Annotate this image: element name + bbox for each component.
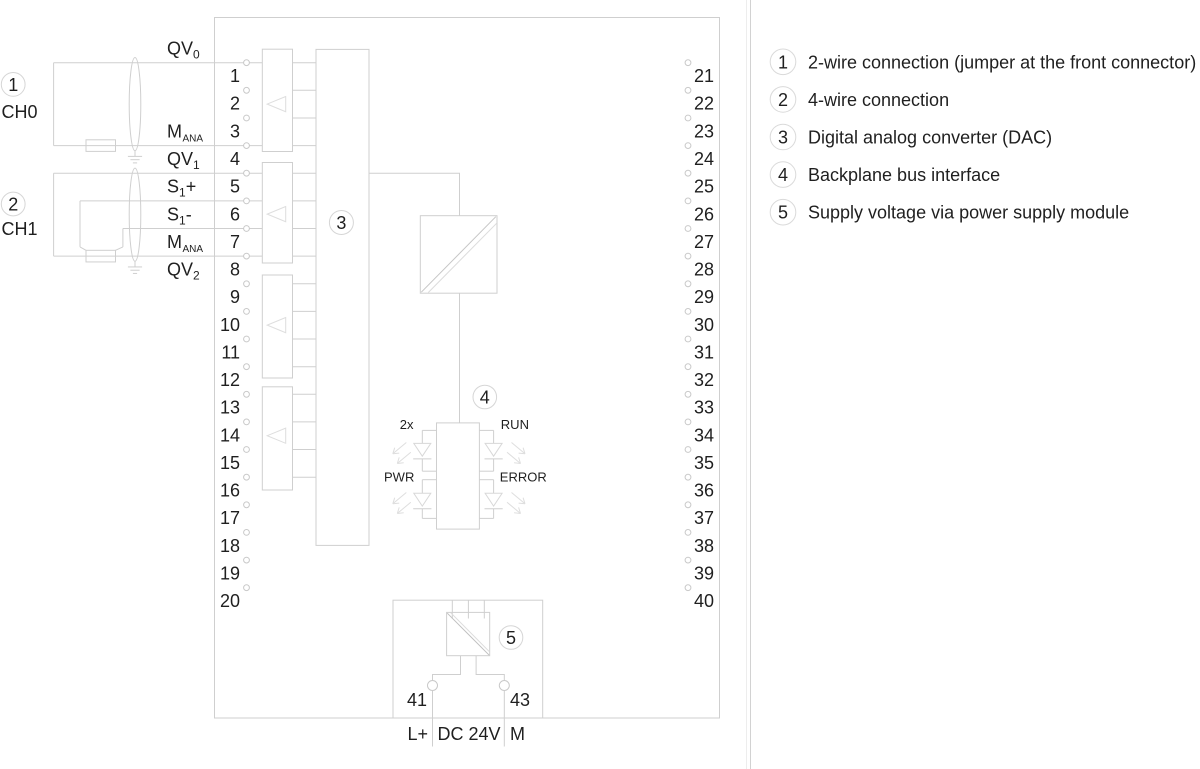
svg-text:2: 2 xyxy=(778,90,788,110)
svg-text:39: 39 xyxy=(694,564,714,584)
svg-text:4: 4 xyxy=(778,165,788,185)
svg-text:14: 14 xyxy=(220,425,240,445)
svg-text:ERROR: ERROR xyxy=(500,470,547,485)
svg-text:41: 41 xyxy=(407,690,427,710)
svg-text:3: 3 xyxy=(778,128,788,148)
svg-text:Backplane bus interface: Backplane bus interface xyxy=(808,165,1000,185)
svg-text:1: 1 xyxy=(193,158,200,172)
svg-text:29: 29 xyxy=(694,287,714,307)
svg-text:34: 34 xyxy=(694,425,714,445)
svg-text:32: 32 xyxy=(694,370,714,390)
svg-text:30: 30 xyxy=(694,315,714,335)
svg-text:24: 24 xyxy=(694,149,714,169)
svg-text:M: M xyxy=(167,232,182,252)
svg-text:3: 3 xyxy=(336,213,346,233)
svg-text:1: 1 xyxy=(230,66,240,86)
svg-text:CH0: CH0 xyxy=(2,102,38,122)
svg-text:8: 8 xyxy=(230,260,240,280)
svg-text:QV: QV xyxy=(167,149,193,169)
svg-text:4-wire connection: 4-wire connection xyxy=(808,90,949,110)
svg-text:36: 36 xyxy=(694,481,714,501)
svg-text:15: 15 xyxy=(220,453,240,473)
svg-text:QV: QV xyxy=(167,38,193,58)
svg-text:12: 12 xyxy=(220,370,240,390)
svg-text:23: 23 xyxy=(694,121,714,141)
svg-text:18: 18 xyxy=(220,536,240,556)
svg-text:22: 22 xyxy=(694,94,714,114)
svg-text:16: 16 xyxy=(220,481,240,501)
svg-text:31: 31 xyxy=(694,342,714,362)
svg-text:RUN: RUN xyxy=(501,417,529,432)
svg-text:13: 13 xyxy=(220,398,240,418)
svg-text:PWR: PWR xyxy=(384,470,414,485)
svg-text:QV: QV xyxy=(167,260,193,280)
svg-text:ANA: ANA xyxy=(183,244,204,255)
svg-text:1: 1 xyxy=(778,52,788,72)
svg-text:25: 25 xyxy=(694,177,714,197)
svg-text:5: 5 xyxy=(230,177,240,197)
svg-text:38: 38 xyxy=(694,536,714,556)
svg-text:9: 9 xyxy=(230,287,240,307)
svg-text:11: 11 xyxy=(221,342,240,362)
svg-text:10: 10 xyxy=(220,315,240,335)
svg-text:2: 2 xyxy=(193,269,200,283)
svg-text:19: 19 xyxy=(220,564,240,584)
svg-text:7: 7 xyxy=(230,232,240,252)
svg-text:2: 2 xyxy=(230,94,240,114)
svg-text:28: 28 xyxy=(694,260,714,280)
svg-text:L+: L+ xyxy=(407,724,428,744)
svg-text:4: 4 xyxy=(480,387,490,407)
svg-text:Digital analog converter (DAC): Digital analog converter (DAC) xyxy=(808,128,1052,148)
svg-text:43: 43 xyxy=(510,690,530,710)
svg-text:17: 17 xyxy=(220,508,240,528)
svg-text:ANA: ANA xyxy=(183,133,204,144)
svg-text:S: S xyxy=(167,204,179,224)
svg-text:-: - xyxy=(186,204,192,224)
svg-text:4: 4 xyxy=(230,149,240,169)
svg-text:+: + xyxy=(186,177,197,197)
svg-text:37: 37 xyxy=(694,508,714,528)
svg-text:Supply voltage via power suppl: Supply voltage via power supply module xyxy=(808,203,1129,223)
svg-text:20: 20 xyxy=(220,591,240,611)
svg-text:6: 6 xyxy=(230,204,240,224)
svg-text:M: M xyxy=(167,121,182,141)
svg-text:1: 1 xyxy=(8,75,18,95)
svg-text:CH1: CH1 xyxy=(2,219,38,239)
svg-text:0: 0 xyxy=(193,47,200,61)
svg-text:21: 21 xyxy=(694,66,714,86)
svg-text:DC 24V: DC 24V xyxy=(438,724,501,744)
svg-text:5: 5 xyxy=(506,628,516,648)
svg-text:2x: 2x xyxy=(400,417,414,432)
svg-text:M: M xyxy=(510,724,525,744)
svg-text:40: 40 xyxy=(694,591,714,611)
svg-text:27: 27 xyxy=(694,232,714,252)
svg-text:33: 33 xyxy=(694,398,714,418)
svg-text:S: S xyxy=(167,177,179,197)
svg-text:2: 2 xyxy=(8,194,18,214)
svg-text:35: 35 xyxy=(694,453,714,473)
svg-text:26: 26 xyxy=(694,204,714,224)
svg-text:2-wire connection (jumper at t: 2-wire connection (jumper at the front c… xyxy=(808,52,1196,72)
svg-text:5: 5 xyxy=(778,203,788,223)
svg-text:3: 3 xyxy=(230,121,240,141)
